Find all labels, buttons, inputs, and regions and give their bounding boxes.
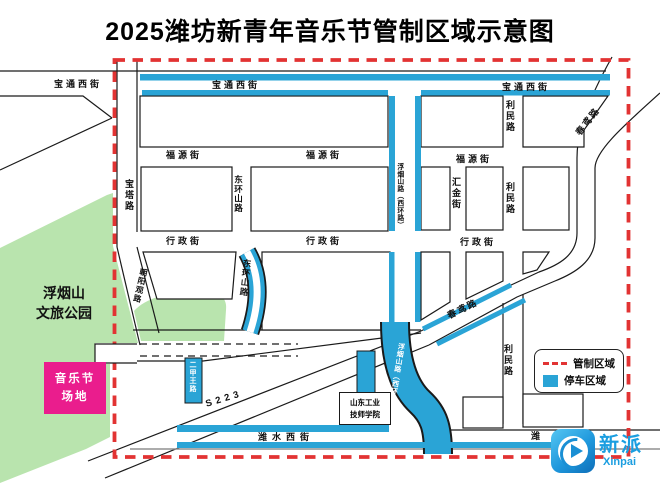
- park-label: 浮烟山 文旅公园: [12, 283, 116, 324]
- school-marker: 山东工业 技师学院: [339, 392, 391, 425]
- street-label-huijin: 汇金街: [451, 177, 460, 210]
- street-label-xingzheng-center: 行政街: [306, 237, 342, 246]
- street-label-wei-partial: 潍: [531, 432, 540, 441]
- venue-label-line2: 场地: [44, 388, 106, 406]
- xinpai-logo: 新派 Xinpai: [551, 429, 643, 473]
- street-label-baotong-xi-center: 宝通西街: [212, 81, 260, 90]
- legend-control-label: 管制区域: [573, 356, 615, 371]
- school-label-line2: 技师学院: [340, 409, 390, 421]
- street-label-fuyanshan-north: 浮烟山路（西环路）: [395, 163, 402, 229]
- legend-row-control: 管制区域: [543, 355, 623, 372]
- street-label-limin-north: 利民路: [505, 100, 514, 133]
- street-label-xingzheng-west: 行政街: [166, 237, 202, 246]
- street-label-baotong-xi-outer: 宝通西街: [54, 80, 102, 89]
- xinpai-logo-text-en: Xinpai: [603, 457, 643, 468]
- control-area-dash-icon: [543, 362, 567, 365]
- legend-row-parking: 停车区域: [543, 372, 623, 389]
- street-label-baotong-xi-east: 宝通西街: [502, 83, 550, 92]
- parking-area-swatch-icon: [543, 375, 558, 387]
- street-label-fuyuan-east: 福源街: [456, 155, 492, 164]
- park-label-line1: 浮烟山: [12, 283, 116, 303]
- school-label-line1: 山东工业: [340, 397, 390, 409]
- street-label-limin-south: 利民路: [503, 344, 512, 377]
- venue-marker: 音乐节 场地: [44, 362, 106, 414]
- street-label-xingzheng-east: 行政街: [460, 238, 496, 247]
- street-label-limin-middle: 利民路: [505, 182, 514, 215]
- legend-parking-label: 停车区域: [564, 373, 606, 388]
- street-label-baota: 宝塔路: [124, 179, 133, 212]
- xinpai-logo-text-cn: 新派: [599, 435, 643, 455]
- xinpai-swirl-icon: [558, 436, 588, 466]
- legend: 管制区域 停车区域: [534, 349, 624, 393]
- street-label-fuyuan-west: 福源街: [166, 151, 202, 160]
- map-page: 2025潍坊新青年音乐节管制区域示意图: [0, 0, 660, 488]
- street-label-fuyuan-center: 福源街: [306, 151, 342, 160]
- play-icon: [571, 444, 583, 458]
- park-label-line2: 文旅公园: [12, 303, 116, 323]
- street-label-donghuanshan-north: 东环山路: [234, 175, 243, 213]
- xinpai-logo-icon: [551, 429, 595, 473]
- street-label-weishui-xi: 潍水西街: [258, 433, 314, 442]
- street-label-erjiawang: 二甲王路: [189, 361, 196, 393]
- venue-label-line1: 音乐节: [44, 370, 106, 388]
- park-entrance-road: [95, 344, 137, 363]
